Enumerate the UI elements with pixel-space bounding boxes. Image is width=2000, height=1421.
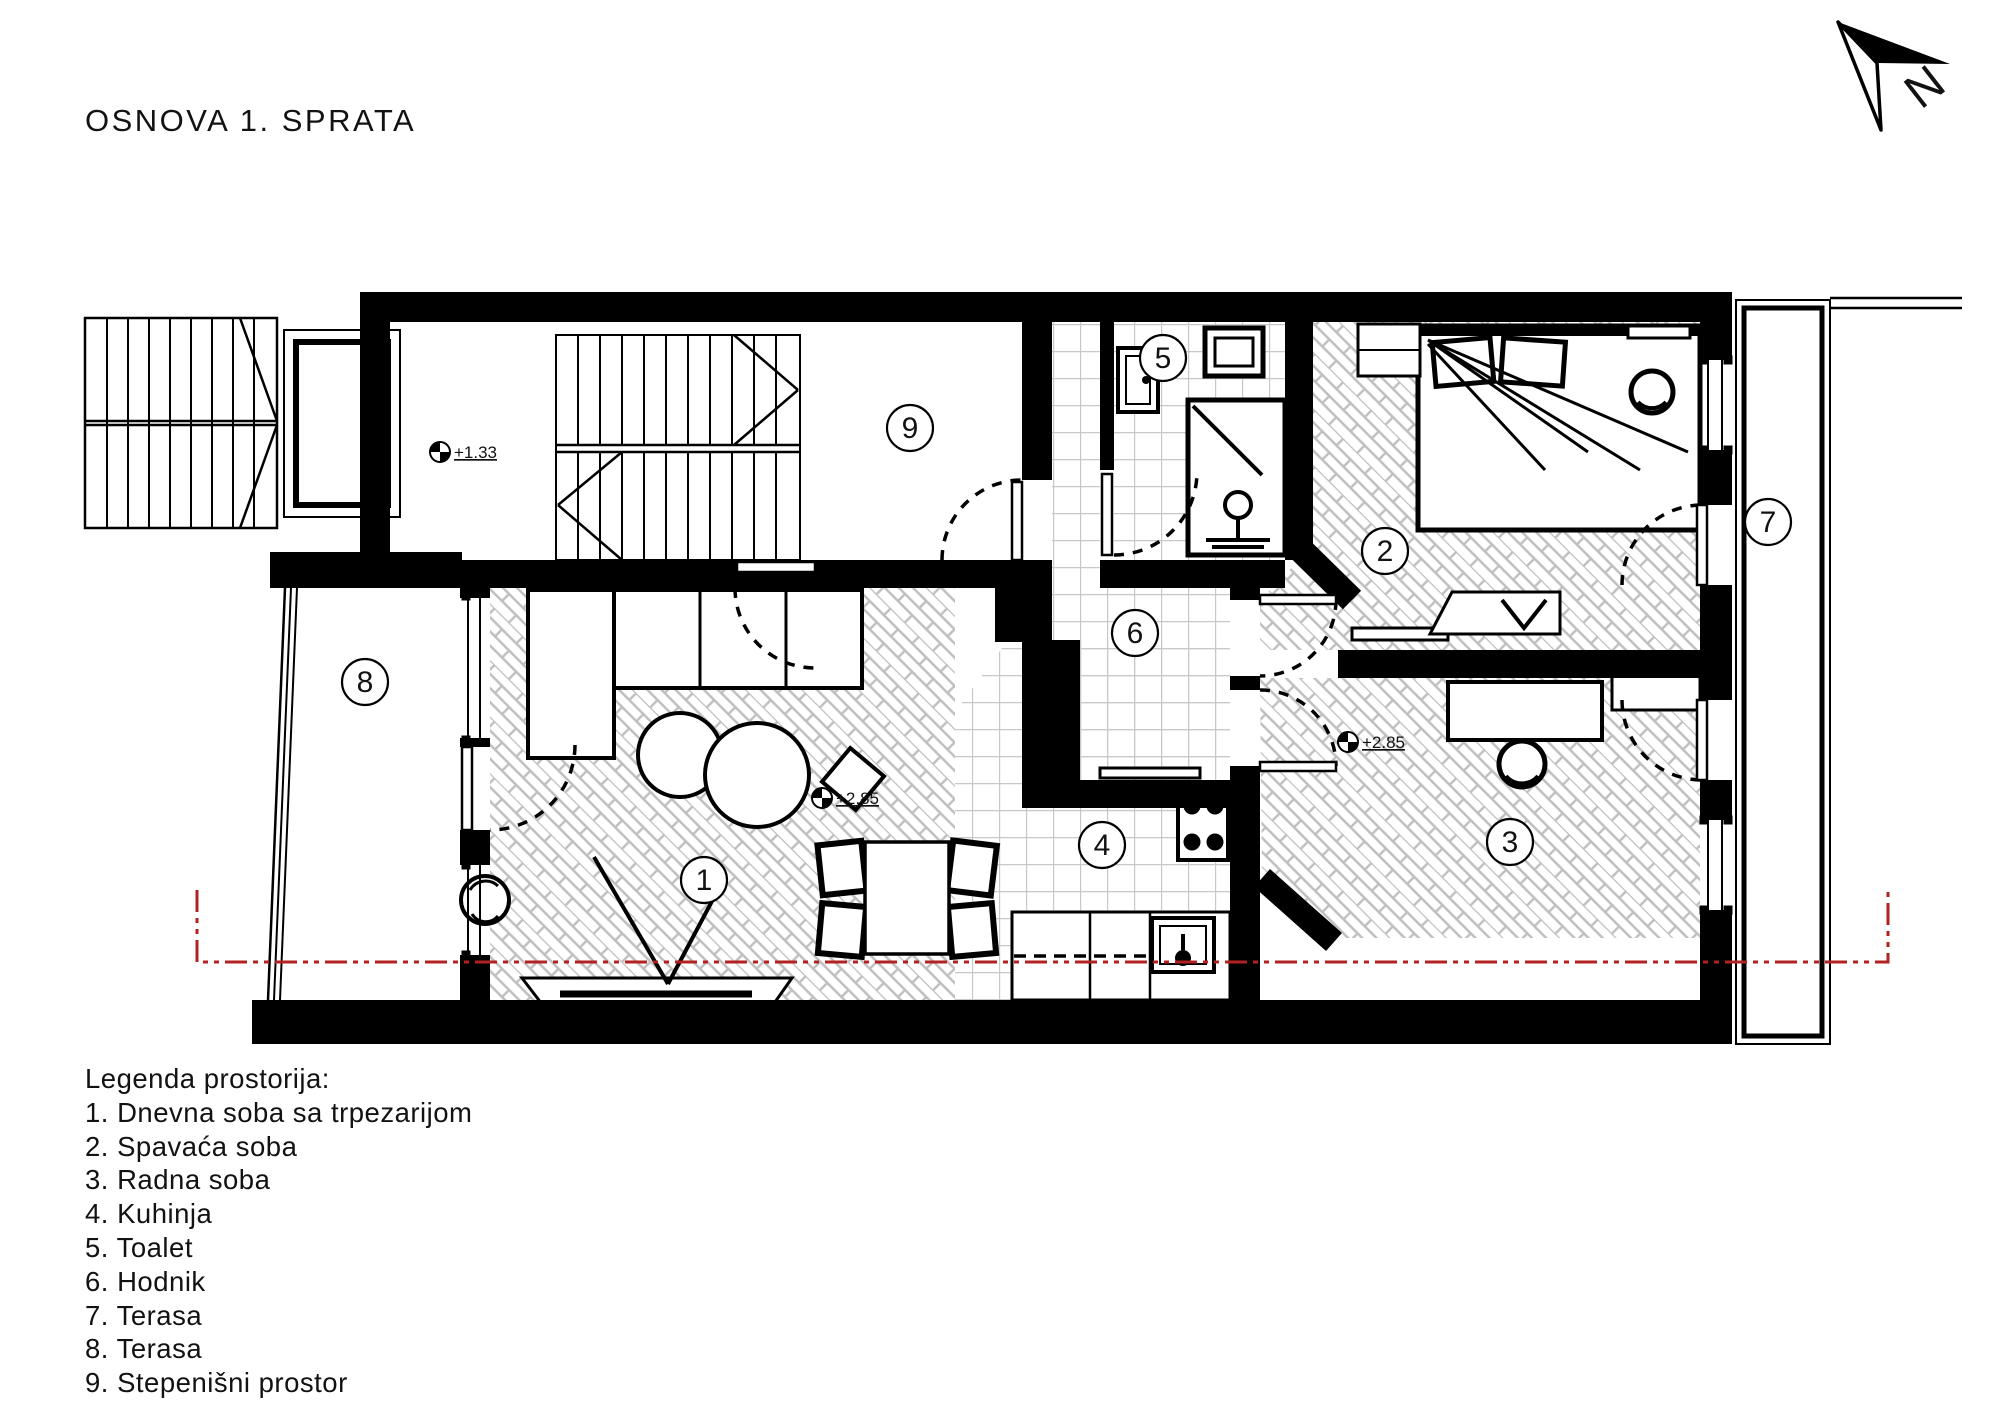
room-label-5: 5 (1140, 335, 1186, 381)
svg-text:8: 8 (357, 666, 374, 699)
external-staircase (85, 318, 277, 528)
svg-text:6: 6 (1127, 617, 1144, 650)
internal-staircase (556, 335, 800, 560)
kitchen-counter (1012, 912, 1230, 1000)
desk-shelf (1612, 676, 1700, 710)
room-label-2: 2 (1362, 528, 1408, 574)
desk (1448, 682, 1602, 740)
toilet-cabinet (1205, 328, 1263, 376)
site-boundary-lines (1830, 298, 1962, 308)
svg-text:3: 3 (1502, 826, 1519, 859)
terrace-7-border (1736, 298, 1962, 1044)
room-label-9: 9 (887, 405, 933, 451)
room-label-6: 6 (1112, 610, 1158, 656)
svg-text:1: 1 (696, 864, 713, 897)
svg-text:2: 2 (1377, 535, 1394, 568)
window (1700, 816, 1732, 914)
level-marker-icon (430, 442, 450, 462)
window (462, 592, 480, 744)
window (1700, 356, 1732, 454)
north-label: N (1895, 56, 1955, 119)
legend-item: 5. Toalet (85, 1231, 472, 1265)
svg-text:5: 5 (1155, 342, 1172, 375)
legend-item: 1. Dnevna soba sa trpezarijom (85, 1096, 472, 1130)
svg-text:7: 7 (1760, 506, 1777, 539)
level-marker-icon (1338, 732, 1358, 752)
level-value: +2.85 (836, 789, 879, 808)
room-label-8: 8 (342, 659, 388, 705)
legend-item: 3. Radna soba (85, 1163, 472, 1197)
bedroom-wardrobe (1358, 324, 1420, 376)
room-label-1: 1 (681, 857, 727, 903)
svg-text:4: 4 (1094, 829, 1111, 862)
desk-chair (1499, 741, 1545, 787)
legend-item: 2. Spavaća soba (85, 1130, 472, 1164)
hall-console (1100, 768, 1200, 778)
legend-item: 4. Kuhinja (85, 1197, 472, 1231)
level-value: +1.33 (454, 443, 497, 462)
room-label-7: 7 (1745, 499, 1791, 545)
legend-item: 9. Stepenišni prostor (85, 1366, 472, 1400)
nightstand (1628, 326, 1690, 338)
shower (1188, 400, 1285, 555)
pillow (1501, 338, 1566, 386)
legend-heading: Legenda prostorija: (85, 1062, 472, 1096)
vestibule-tile-floor (1052, 322, 1100, 588)
floor-plan-sheet: OSNOVA 1. SPRATA (0, 0, 2000, 1421)
terrace-8-railing (268, 588, 297, 1000)
legend-item: 6. Hodnik (85, 1265, 472, 1299)
stairwell-door-arc (942, 480, 1022, 560)
room-label-4: 4 (1079, 822, 1125, 868)
legend-item: 8. Terasa (85, 1332, 472, 1366)
legend-item: 7. Terasa (85, 1299, 472, 1333)
level-marker-icon (812, 788, 832, 808)
bedroom-stool (1631, 371, 1673, 413)
legend: Legenda prostorija: 1. Dnevna soba sa tr… (85, 1062, 472, 1400)
coffee-table-large (705, 723, 809, 827)
north-arrow-icon: N (1838, 22, 1955, 130)
room-label-3: 3 (1487, 819, 1533, 865)
bed (1418, 326, 1700, 530)
svg-text:9: 9 (902, 412, 919, 445)
level-value: +2.85 (1362, 733, 1405, 752)
